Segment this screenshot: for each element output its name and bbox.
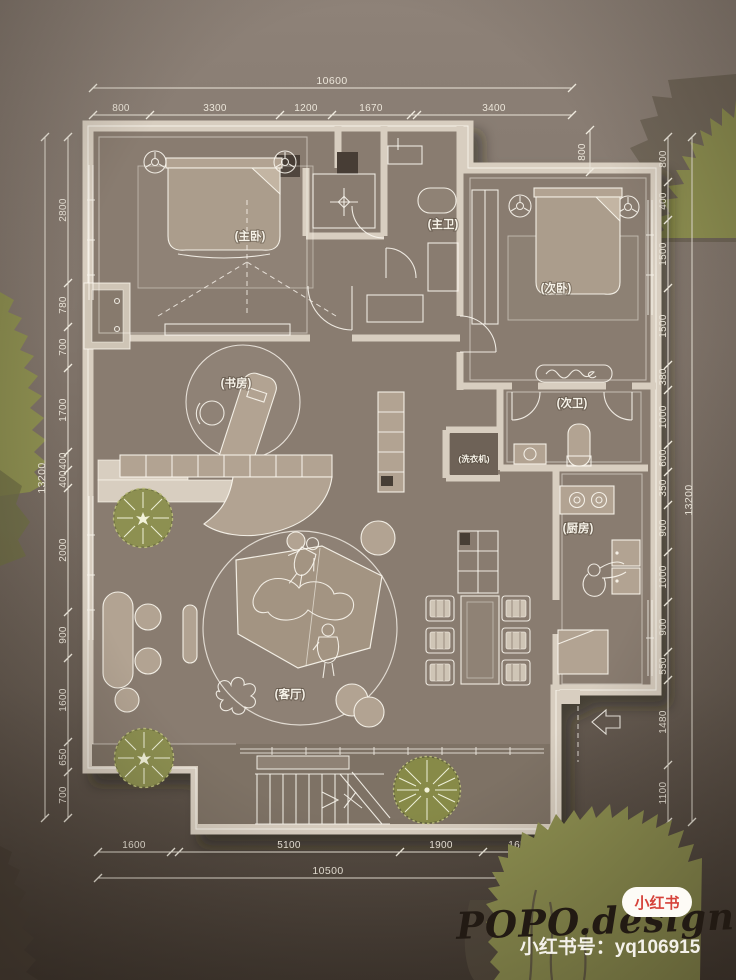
vignette [0, 0, 736, 980]
floorplan-svg: 10600 800 3300 1200 1670 3400 800 13200 … [0, 0, 736, 980]
badge-label: 小红书 [634, 894, 679, 912]
xiaohongshu-badge: 小红书 [622, 887, 692, 917]
floorplan-render: 10600 800 3300 1200 1670 3400 800 13200 … [0, 0, 736, 980]
watermark-account: 小红书号：yq106915 [520, 935, 701, 958]
